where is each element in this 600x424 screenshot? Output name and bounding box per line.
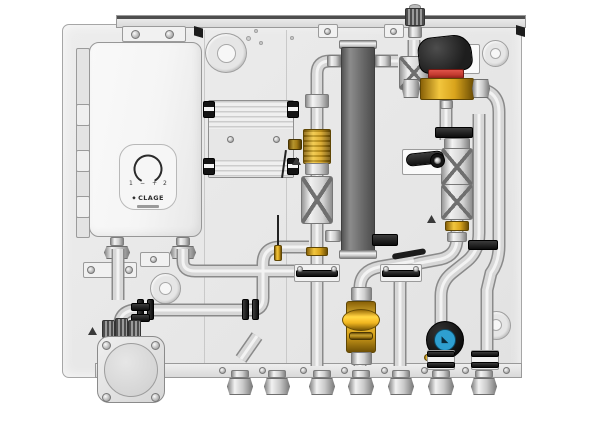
brass-ring bbox=[445, 221, 469, 231]
brass-ring bbox=[306, 247, 328, 256]
union-fitting bbox=[351, 287, 372, 301]
rail-screw bbox=[462, 367, 469, 374]
union-collar bbox=[475, 370, 493, 378]
junction-box-lid bbox=[104, 343, 158, 397]
clage-logo-text: CLAGE bbox=[138, 195, 164, 202]
panel-seam bbox=[286, 30, 287, 370]
cable-gland bbox=[115, 318, 128, 338]
box-corner-bracket bbox=[287, 101, 299, 118]
box-corner-bracket bbox=[203, 158, 215, 175]
clamp-screw bbox=[331, 266, 337, 272]
pump-icon: ◣ bbox=[442, 336, 449, 345]
pipe-clamp bbox=[435, 127, 473, 138]
pipe-clamp bbox=[242, 299, 249, 320]
valve-nut bbox=[472, 79, 490, 98]
rail-screw bbox=[503, 367, 510, 374]
heater-dial bbox=[128, 150, 168, 190]
box-corner-screw bbox=[151, 341, 160, 350]
bottom-union-nut bbox=[264, 378, 290, 395]
bottom-union-nut bbox=[388, 378, 414, 395]
electronics-box-fins-top bbox=[209, 101, 293, 129]
clamp-screw bbox=[413, 266, 419, 272]
union-fitting bbox=[447, 232, 467, 242]
sensor-cable bbox=[277, 215, 279, 245]
pipe-clamp bbox=[252, 299, 259, 320]
dial-label-plus: + bbox=[152, 181, 157, 187]
plate-heat-exchanger bbox=[341, 47, 375, 253]
hx-port bbox=[327, 55, 341, 67]
top-rail-strip bbox=[117, 16, 525, 19]
rail-screw bbox=[259, 367, 266, 374]
clamp-screw bbox=[297, 266, 303, 272]
rail-plate-screw bbox=[390, 28, 397, 35]
hydraulic-module-rendering: 1 − + 2 ◆ CLAGE bbox=[0, 0, 600, 424]
rail-screw bbox=[381, 367, 388, 374]
immersion-sensor bbox=[274, 245, 282, 261]
bottom-union-nut bbox=[348, 378, 374, 395]
valve-body bbox=[301, 176, 333, 224]
union-fitting bbox=[351, 352, 372, 365]
box-corner-bracket bbox=[203, 101, 215, 118]
hx-pipe-clamp bbox=[372, 234, 398, 246]
union-collar bbox=[268, 370, 286, 378]
valve-body bbox=[441, 148, 473, 186]
pipe-clamp bbox=[471, 351, 499, 357]
valve-stem bbox=[440, 100, 453, 109]
heater-union-nut bbox=[170, 246, 196, 259]
valve-collar bbox=[349, 332, 373, 340]
valve-nut bbox=[402, 79, 420, 98]
pilot-hole bbox=[290, 36, 294, 40]
heater-inlet-stub bbox=[176, 237, 190, 246]
hx-port bbox=[375, 55, 391, 67]
panel-hole-center bbox=[490, 48, 501, 59]
bracket-screw bbox=[150, 256, 157, 263]
rail-screw bbox=[300, 367, 307, 374]
pipe-clamp bbox=[468, 240, 498, 250]
clage-logo: ◆ CLAGE bbox=[125, 194, 171, 202]
box-corner-screw bbox=[151, 393, 160, 402]
heater-model-text-bar bbox=[137, 205, 159, 208]
solenoid-spade-connector bbox=[288, 139, 302, 150]
pipe-clamp bbox=[427, 351, 455, 357]
union-collar bbox=[432, 370, 450, 378]
box-screw bbox=[273, 136, 280, 143]
pump-window: ◣ bbox=[434, 329, 456, 351]
union-fitting bbox=[305, 94, 329, 108]
air-vent-base bbox=[408, 26, 422, 38]
box-corner-screw bbox=[102, 393, 111, 402]
bottom-union-nut bbox=[309, 378, 335, 395]
dial-label-2: 2 bbox=[163, 181, 167, 187]
pilot-hole bbox=[246, 36, 251, 41]
pilot-hole bbox=[254, 29, 258, 33]
panel-seam bbox=[204, 30, 205, 370]
union-collar bbox=[231, 370, 249, 378]
rail-screw bbox=[341, 367, 348, 374]
mixing-valve-body bbox=[420, 78, 474, 100]
heater-side-notch bbox=[76, 196, 90, 218]
panel-hole-center bbox=[159, 282, 172, 295]
bracket-screw bbox=[87, 266, 95, 274]
hx-port bbox=[325, 230, 341, 242]
panel-hole-center bbox=[490, 319, 502, 331]
bottom-union-nut bbox=[471, 378, 497, 395]
heater-side-notch bbox=[76, 150, 90, 172]
union-collar bbox=[352, 370, 370, 378]
dial-label-1: 1 bbox=[129, 181, 133, 187]
clamp-screw bbox=[383, 266, 389, 272]
pipe-clamp bbox=[131, 303, 150, 311]
pilot-hole bbox=[259, 41, 263, 45]
box-screw bbox=[227, 136, 234, 143]
union-collar bbox=[313, 370, 331, 378]
rail-screw bbox=[219, 367, 226, 374]
clage-logo-icon: ◆ bbox=[132, 195, 136, 202]
union-fitting bbox=[305, 163, 329, 175]
union-collar bbox=[392, 370, 410, 378]
bottom-union-nut bbox=[428, 378, 454, 395]
hx-bottom-plate bbox=[339, 250, 377, 259]
rail-plate-screw bbox=[324, 28, 331, 35]
air-vent-cap bbox=[405, 8, 425, 26]
heater-union-nut bbox=[104, 246, 130, 259]
bracket-screw bbox=[125, 266, 133, 274]
box-corner-screw bbox=[102, 341, 111, 350]
panel-hole-center bbox=[217, 44, 236, 63]
bracket-screw bbox=[165, 30, 174, 39]
pipe-clamp bbox=[427, 362, 455, 368]
valve-knob bbox=[342, 309, 380, 331]
pipe-clamp bbox=[471, 362, 499, 368]
solenoid-valve bbox=[303, 129, 331, 164]
bracket-screw bbox=[131, 30, 140, 39]
valve-body bbox=[441, 184, 473, 220]
heater-outlet-stub bbox=[110, 237, 124, 246]
dial-label-minus: − bbox=[140, 181, 145, 187]
heater-side-notch bbox=[76, 104, 90, 126]
lever-hub-screw bbox=[434, 157, 441, 164]
bottom-union-nut bbox=[227, 378, 253, 395]
